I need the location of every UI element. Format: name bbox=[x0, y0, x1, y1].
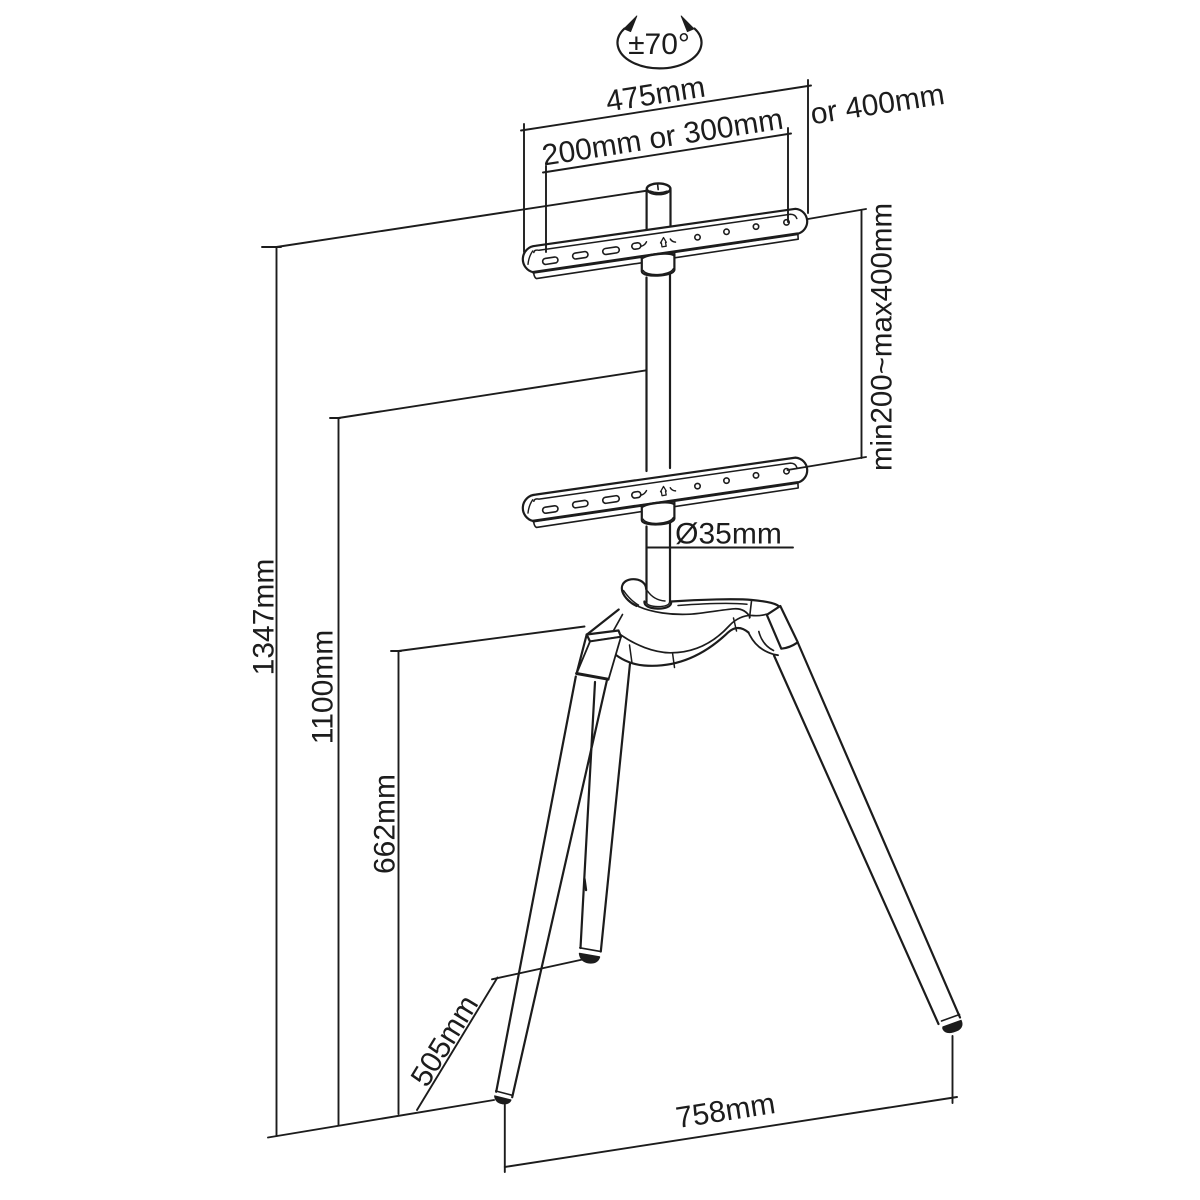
svg-text:1347mm: 1347mm bbox=[248, 559, 281, 676]
svg-text:662mm: 662mm bbox=[369, 774, 402, 874]
svg-text:Ø35mm: Ø35mm bbox=[675, 518, 782, 551]
svg-text:1100mm: 1100mm bbox=[307, 630, 340, 745]
svg-text:min200~max400mm: min200~max400mm bbox=[866, 203, 899, 471]
svg-text:±70°: ±70° bbox=[628, 28, 690, 61]
